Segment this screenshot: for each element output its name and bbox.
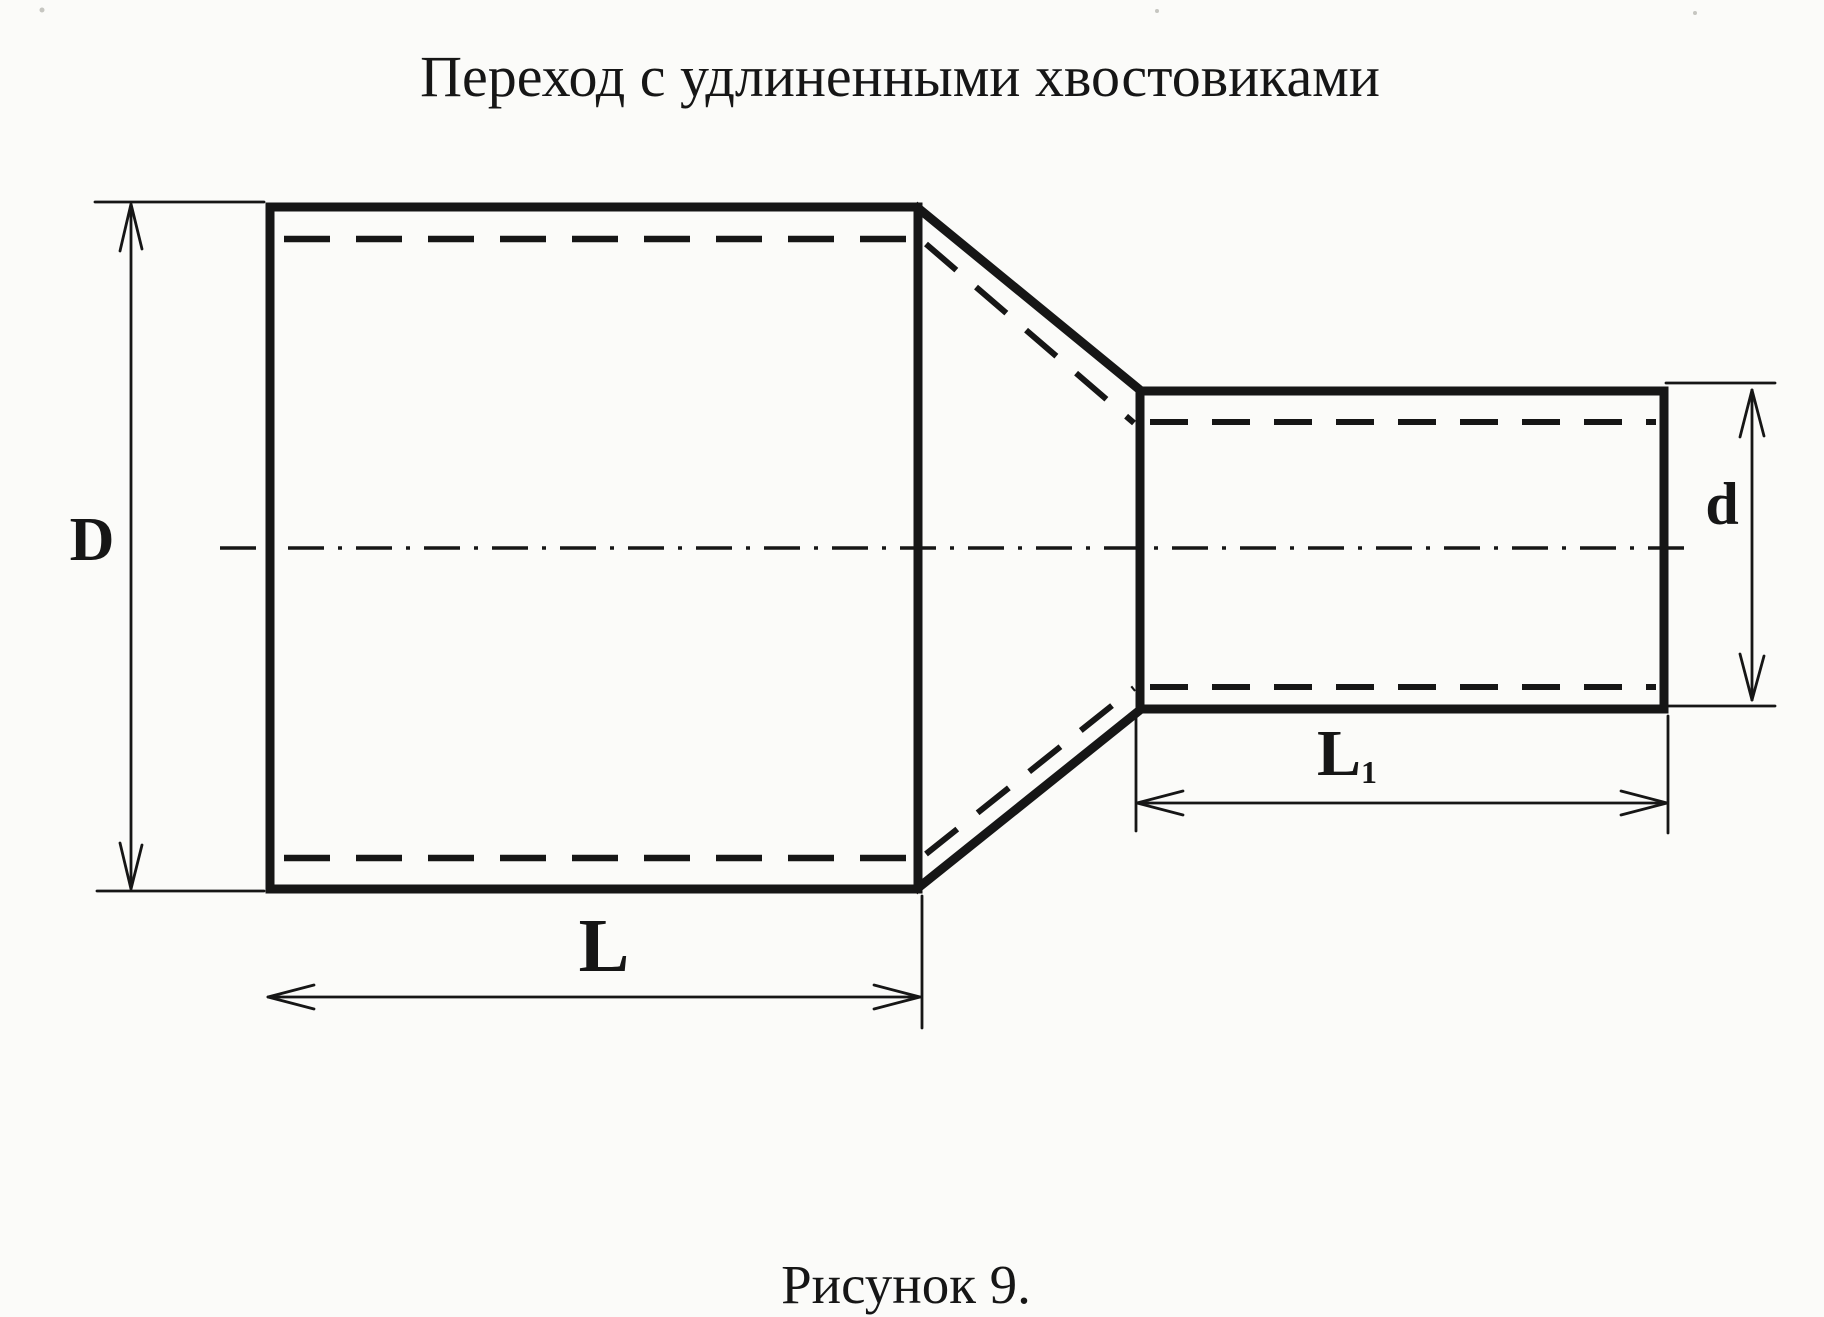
small-length-label: L1 [1317, 717, 1377, 790]
scan-speck [1155, 9, 1159, 13]
page-title: Переход с удлиненными хвостовиками [420, 44, 1380, 109]
small-length-label-base: L [1317, 717, 1361, 790]
small-length-label-subscript: 1 [1361, 754, 1377, 790]
scan-speck [1693, 11, 1697, 15]
cone-bore-bottom-dashed [926, 688, 1134, 854]
technical-drawing: Переход с удлиненными хвостовиками D L [0, 0, 1824, 1317]
large-diameter-label: D [70, 506, 115, 574]
cone-bore-top-dashed [926, 244, 1134, 423]
cone-bottom-edge [918, 710, 1140, 888]
small-diameter-label: d [1705, 471, 1738, 537]
figure-caption: Рисунок 9. [781, 1254, 1031, 1315]
small-cylinder-outline [1140, 391, 1664, 709]
large-length-label: L [579, 904, 630, 988]
scan-speck [40, 8, 45, 13]
cone-top-edge [918, 208, 1140, 390]
scanned-drawing-page: Переход с удлиненными хвостовиками D L [0, 0, 1824, 1317]
